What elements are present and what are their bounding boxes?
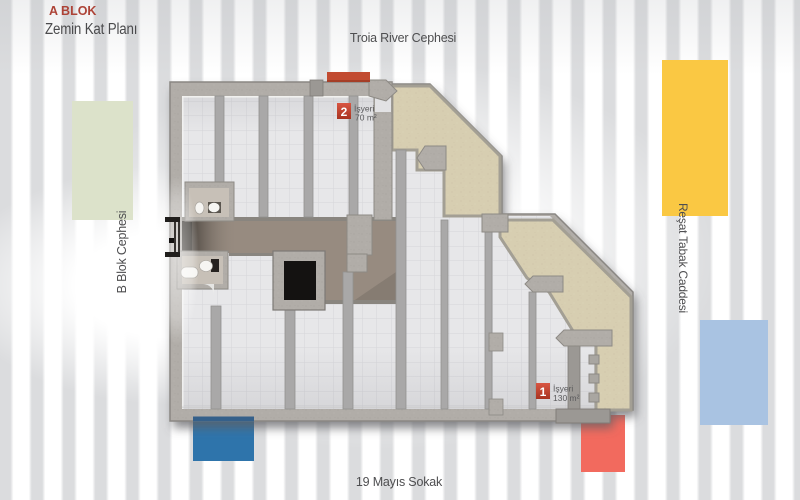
svg-text:70 m²: 70 m² <box>355 113 377 123</box>
svg-text:2: 2 <box>341 105 348 119</box>
svg-text:1: 1 <box>540 385 547 399</box>
svg-text:130 m²: 130 m² <box>553 393 580 403</box>
svg-text:İşyeri: İşyeri <box>553 384 573 394</box>
